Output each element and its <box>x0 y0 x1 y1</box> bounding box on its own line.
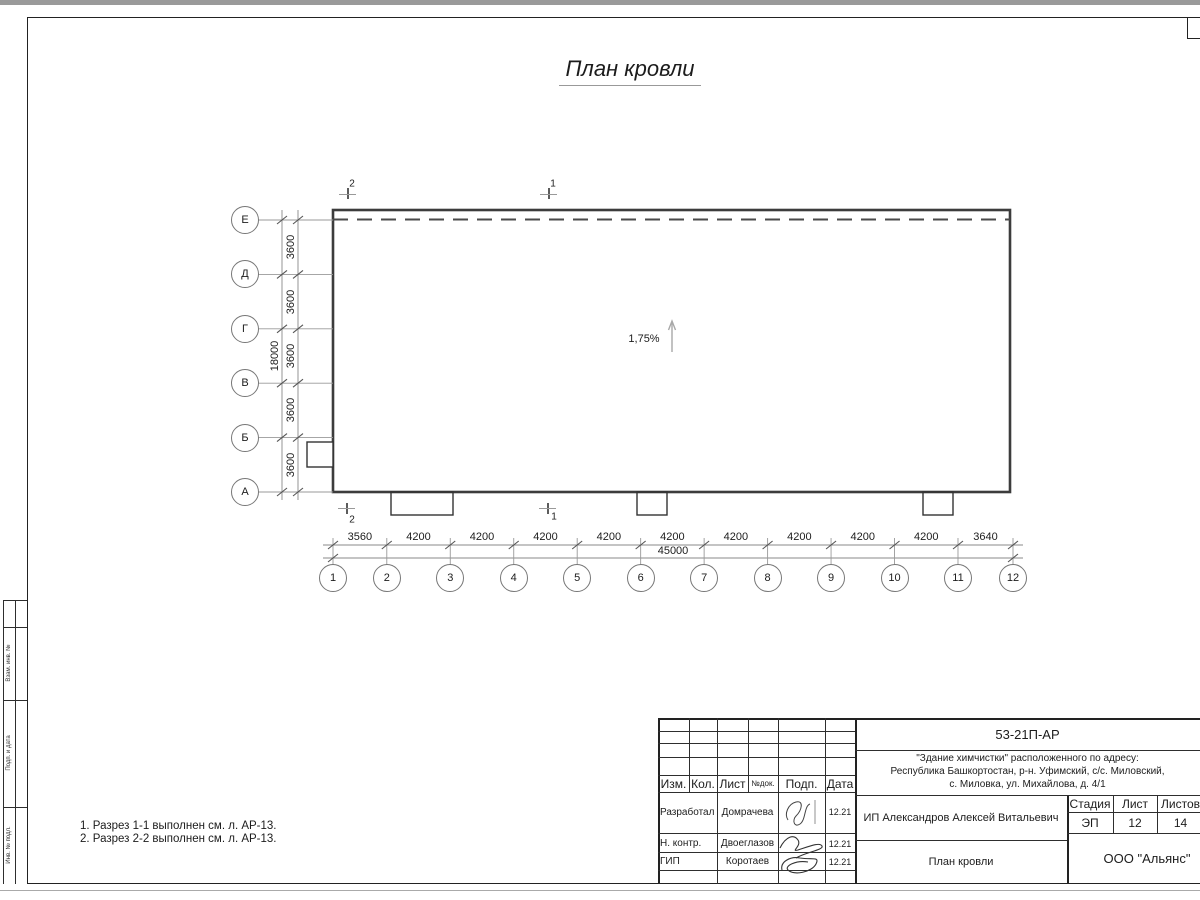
signature <box>782 794 824 834</box>
dim-label: 3600 <box>285 398 297 422</box>
col-axis-bubble: 7 <box>690 564 718 592</box>
col-axis-bubble: 11 <box>944 564 972 592</box>
sheets-total: 14 <box>1157 812 1200 833</box>
dim-label: 3560 <box>348 531 372 543</box>
row-role: Разработал <box>660 805 716 819</box>
dim-label: 4200 <box>851 531 875 543</box>
porch-bottom <box>637 492 667 515</box>
titleblock-line <box>658 743 855 744</box>
dim-label: 4200 <box>597 531 621 543</box>
row-axis-bubble: В <box>231 369 259 397</box>
porch-bottom <box>923 492 953 515</box>
row-date: 12.21 <box>825 837 855 851</box>
section-number: 2 <box>349 515 355 526</box>
row-axis-bubble: Е <box>231 206 259 234</box>
dim-total-label: 45000 <box>658 545 689 557</box>
col-header-podp: Подп. <box>778 775 825 792</box>
dim-label: 4200 <box>660 531 684 543</box>
dim-label: 4200 <box>470 531 494 543</box>
row-name: Домрачева <box>717 805 778 819</box>
dim-label: 3600 <box>285 289 297 313</box>
dim-label: 3600 <box>285 344 297 368</box>
stage-value: ЭП <box>1067 812 1113 833</box>
col-axis-bubble: 12 <box>999 564 1027 592</box>
col-header-data: Дата <box>825 775 855 792</box>
porch-bottom <box>391 492 453 515</box>
section-number: 1 <box>550 179 556 190</box>
titleblock-line <box>658 792 855 793</box>
col-axis-bubble: 5 <box>563 564 591 592</box>
section-number: 2 <box>349 179 355 190</box>
col-header-izm: Изм. <box>658 775 689 792</box>
section-mark-1-top <box>540 188 557 199</box>
slope-arrow <box>669 321 676 352</box>
col-axis-bubble: 1 <box>319 564 347 592</box>
dim-label: 4200 <box>787 531 811 543</box>
dim-label: 4200 <box>533 531 557 543</box>
section-mark-2-bottom <box>338 503 355 514</box>
col-axis-bubble: 8 <box>754 564 782 592</box>
project-address: "Здание химчистки" расположенного по адр… <box>855 752 1200 764</box>
col-axis-bubble: 4 <box>500 564 528 592</box>
row-axis-bubble: Б <box>231 424 259 452</box>
row-role: ГИП <box>660 854 716 869</box>
porch-left <box>307 442 333 467</box>
section-number: 1 <box>551 512 557 523</box>
row-date: 12.21 <box>825 855 855 869</box>
row-date: 12.21 <box>825 805 855 819</box>
titleblock-line <box>855 750 1200 751</box>
dim-label: 3600 <box>285 235 297 259</box>
col-axis-bubble: 9 <box>817 564 845 592</box>
col-axis-bubble: 10 <box>881 564 909 592</box>
sheet-label: Лист <box>1113 795 1157 812</box>
slope-label: 1,75% <box>628 333 659 345</box>
drawing-title: План кровли <box>855 840 1067 884</box>
row-role: Н. контр. <box>660 835 716 851</box>
col-header-ndok: №док. <box>748 775 778 792</box>
dim-total-label: 18000 <box>269 341 281 372</box>
dim-label: 4200 <box>914 531 938 543</box>
section-mark-2-top <box>339 188 356 199</box>
doc-number: 53-21П-АР <box>855 720 1200 748</box>
dim-label: 4200 <box>406 531 430 543</box>
row-axis-bubble: Г <box>231 315 259 343</box>
sheet-number: 12 <box>1113 812 1157 833</box>
titleblock-line <box>658 731 855 732</box>
note-line: 2. Разрез 2-2 выполнен см. л. АР-13. <box>80 833 277 845</box>
dim-label: 3600 <box>285 453 297 477</box>
col-header-kol: Кол. <box>689 775 717 792</box>
drawing-sheet: Взам. инв. № Подп. и дата Инв. № подл. П… <box>0 0 1200 900</box>
note-line: 1. Разрез 1-1 выполнен см. л. АР-13. <box>80 820 277 832</box>
col-axis-bubble: 3 <box>436 564 464 592</box>
sheets-label: Листов <box>1157 795 1200 812</box>
row-axis-bubble: Д <box>231 260 259 288</box>
col-axis-bubble: 2 <box>373 564 401 592</box>
company-name: ООО "Альянс" <box>1067 833 1200 884</box>
titleblock-line <box>658 757 855 758</box>
dim-label: 3640 <box>973 531 997 543</box>
stage-label: Стадия <box>1067 795 1113 812</box>
signature <box>776 832 828 882</box>
col-header-list: Лист <box>717 775 748 792</box>
row-name: Двоеглазов <box>717 835 778 851</box>
project-address: с. Миловка, ул. Михайлова, д. 4/1 <box>855 778 1200 790</box>
dim-label: 4200 <box>724 531 748 543</box>
row-axis-bubble: А <box>231 478 259 506</box>
project-address: Республика Башкортостан, р-н. Уфимский, … <box>855 765 1200 777</box>
row-name: Коротаев <box>717 854 778 869</box>
col-axis-bubble: 6 <box>627 564 655 592</box>
client-name: ИП Александров Алексей Витальевич <box>855 795 1067 840</box>
